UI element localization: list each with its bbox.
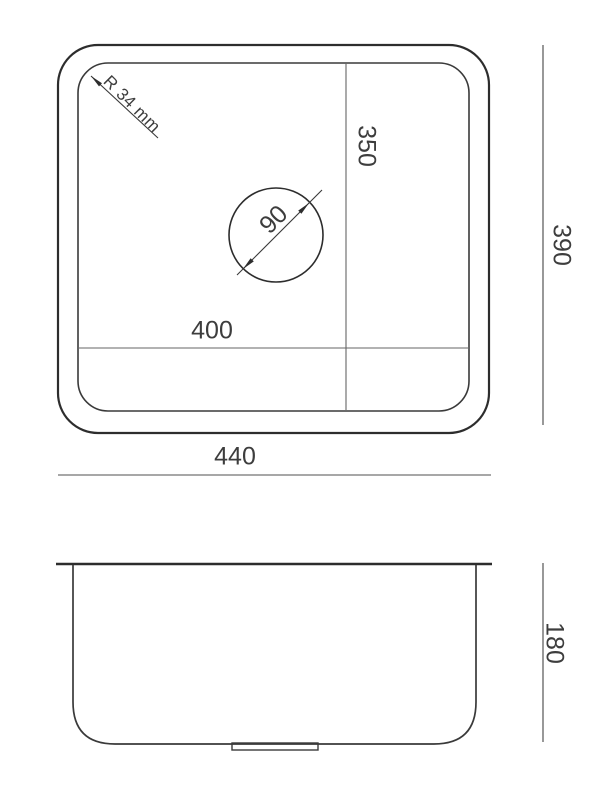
- arrowhead-diameter-ne: [298, 203, 309, 214]
- sink-technical-drawing: 350 390 400 440 90 R 34 mm 180: [0, 0, 610, 800]
- label-outer-height: 390: [549, 224, 574, 266]
- drawing-linework: [0, 0, 610, 800]
- arrowhead-diameter-sw: [243, 258, 254, 269]
- label-inner-height: 350: [354, 125, 379, 167]
- label-inner-width: 400: [191, 319, 233, 344]
- label-outer-width: 440: [214, 445, 256, 470]
- side-view-bowl-profile: [73, 565, 476, 744]
- side-view: [56, 563, 543, 750]
- label-bowl-depth: 180: [542, 622, 567, 664]
